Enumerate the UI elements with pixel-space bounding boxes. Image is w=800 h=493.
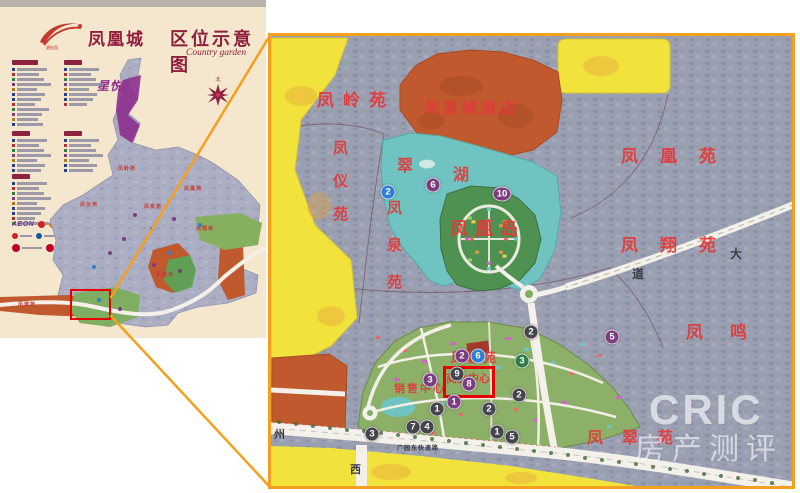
brand-logo-icon (36, 18, 86, 48)
estate-label: 凤鸣 (686, 318, 774, 343)
poi-dot (168, 251, 172, 255)
estate-label-small: 凤凰岛 (156, 271, 174, 278)
map-marker: 5 (605, 330, 620, 345)
tree-icon (345, 428, 349, 432)
brand-name: 凤凰城 (88, 25, 145, 50)
map-marker: 6 (426, 178, 441, 193)
estate-label: 凤凰岛 (450, 215, 525, 241)
estate-label: 凤翔苑 (621, 231, 738, 256)
estate-label: 广园东快速路 (397, 443, 439, 452)
estate-label-small: 凤岭苑 (118, 165, 136, 172)
top-gray-strip (0, 0, 266, 7)
estate-label: 凤仪苑 (329, 140, 350, 239)
tree-icon (294, 422, 298, 426)
tree-icon (719, 474, 723, 478)
estate-label: 凤凰城酒店 (424, 97, 519, 118)
star-zone (116, 75, 141, 143)
poi-dot (133, 213, 137, 217)
tree-icon (549, 451, 553, 455)
brand-sub-label: 碧桂园 (46, 45, 58, 51)
tree-icon (532, 449, 536, 453)
tree-icon (328, 426, 332, 430)
poi-dot (152, 263, 156, 267)
map-marker: 1 (430, 402, 445, 417)
map-marker: 10 (493, 187, 512, 202)
poi-dot (92, 265, 96, 269)
poi-dot (150, 227, 154, 231)
map-marker: 7 (406, 420, 421, 435)
screenshot-stage: 碧桂园 凤凰城 区位示意图 Country garden 北 星悦 AEON (0, 0, 800, 493)
map-marker: 2 (381, 185, 396, 200)
poi-dot (108, 251, 112, 255)
tree-icon (277, 420, 281, 424)
map-marker: 8 (462, 377, 477, 392)
map-marker: 2 (512, 388, 527, 403)
map-marker: 2 (455, 349, 470, 364)
detail-map-panel: 凤岭苑凤凰城酒店翠湖凤仪苑凤泉苑凤凰苑凤翔苑凤鸣凤翠苑凤凰岛凤馨苑销售中心商业中… (268, 33, 795, 489)
detail-map: 凤岭苑凤凰城酒店翠湖凤仪苑凤泉苑凤凰苑凤翔苑凤鸣凤翠苑凤凰岛凤馨苑销售中心商业中… (271, 36, 792, 486)
poi-dot (118, 307, 122, 311)
map-marker: 3 (515, 354, 530, 369)
poi-dot (198, 223, 202, 227)
estate-label: 州 (274, 426, 285, 442)
estate-label: 大 (730, 245, 742, 262)
estate-label-small: 凤仪苑 (80, 201, 98, 208)
estate-label: 西 (350, 461, 361, 477)
tree-icon (770, 481, 774, 485)
map-marker: 3 (365, 427, 380, 442)
poi-dot (172, 217, 176, 221)
overview-map: 凤岭苑凤仪苑凤泉苑凤凰苑凤翔苑凤凰岛凤翠苑 (0, 55, 266, 339)
map-marker: 1 (447, 395, 462, 410)
map-marker: 2 (482, 402, 497, 417)
estate-label: 凤泉苑 (383, 200, 404, 311)
poi-dot (122, 237, 126, 241)
estate-label: 销售中心 (394, 380, 446, 396)
pond (419, 160, 435, 169)
map-marker: 3 (423, 373, 438, 388)
estate-label-small: 凤凰苑 (184, 185, 202, 192)
map-marker: 4 (420, 420, 435, 435)
estate-label: 道 (632, 265, 644, 282)
estate-label: 凤凰苑 (621, 142, 738, 167)
estate-label: 凤岭苑 (317, 86, 395, 111)
estate-label-small: 凤翠苑 (18, 301, 36, 308)
tree-icon (311, 424, 315, 428)
highlight-box-overview (70, 289, 111, 320)
map-marker: 6 (471, 349, 486, 364)
tree-icon (583, 456, 587, 460)
tree-icon (702, 472, 706, 476)
estate-label-small: 凤泉苑 (144, 203, 162, 210)
estate-label: 翠 (397, 152, 413, 176)
map-marker: 5 (505, 430, 520, 445)
poi-dot (178, 269, 182, 273)
map-marker: 2 (524, 325, 539, 340)
tree-icon (600, 458, 604, 462)
watermark-subtitle: 房产测评 (635, 424, 783, 468)
brochure-panel: 碧桂园 凤凰城 区位示意图 Country garden 北 星悦 AEON (0, 0, 266, 493)
estate-label: 湖 (453, 161, 469, 185)
map-marker: 1 (490, 425, 505, 440)
